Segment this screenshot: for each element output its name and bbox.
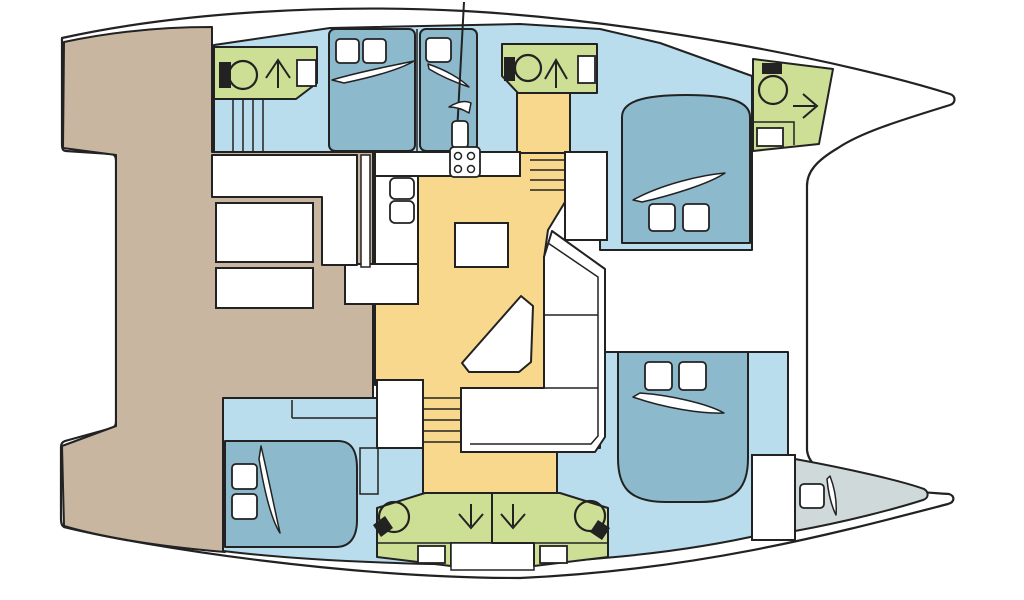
starboard-aft-bed-pillow <box>232 464 257 489</box>
starboard-hull-floor-strip <box>360 448 378 494</box>
folding-door-panel <box>452 121 468 148</box>
port-aft-bed-1-pillow-2 <box>363 39 386 63</box>
stove-burner-icon <box>455 153 462 160</box>
salon-passage-to-port-head <box>517 93 570 153</box>
starboard-aft-bed-pillow-2 <box>232 494 257 519</box>
port-bow-toilet-tank-icon <box>762 63 782 74</box>
starboard-forward-bed-pillow-2 <box>679 362 706 390</box>
port-mid-toilet-tank-icon <box>504 57 515 81</box>
stove-burner-icon-2 <box>468 153 475 160</box>
starboard-head-2-sink <box>540 546 567 563</box>
starboard-bow-passage <box>752 455 795 540</box>
galley-counter-foot <box>345 264 418 304</box>
galley-island <box>455 223 508 267</box>
floorplan-svg <box>0 0 1024 600</box>
port-aft-bed-1-pillow <box>336 39 359 63</box>
starboard-aft-cabinet <box>377 380 423 448</box>
cockpit-wall-strip <box>361 155 370 267</box>
stove-burner-icon-4 <box>468 166 475 173</box>
port-bow-sink <box>757 128 783 146</box>
port-forward-bed-pillow-2 <box>683 204 709 231</box>
port-aft-bed-2-pillow <box>426 38 451 62</box>
stove-burner-icon-3 <box>455 166 462 173</box>
cockpit-table <box>216 203 313 262</box>
starboard-heads-floor-gap <box>451 543 534 570</box>
cockpit-bench <box>216 268 313 308</box>
starboard-bow-berth-pillow <box>800 484 824 508</box>
galley-sink <box>390 178 414 199</box>
salon-forward-cabinet <box>565 152 607 240</box>
starboard-head-1-sink <box>418 546 445 563</box>
galley-sink-2 <box>390 201 414 223</box>
catamaran-floorplan-page <box>0 0 1024 600</box>
port-forward-bed-pillow <box>649 204 675 231</box>
port-mid-sink <box>578 56 595 83</box>
stove-icon <box>450 147 480 177</box>
starboard-forward-bed-pillow <box>645 362 672 390</box>
galley-counter-top <box>375 152 520 176</box>
port-aft-sink <box>297 60 316 86</box>
